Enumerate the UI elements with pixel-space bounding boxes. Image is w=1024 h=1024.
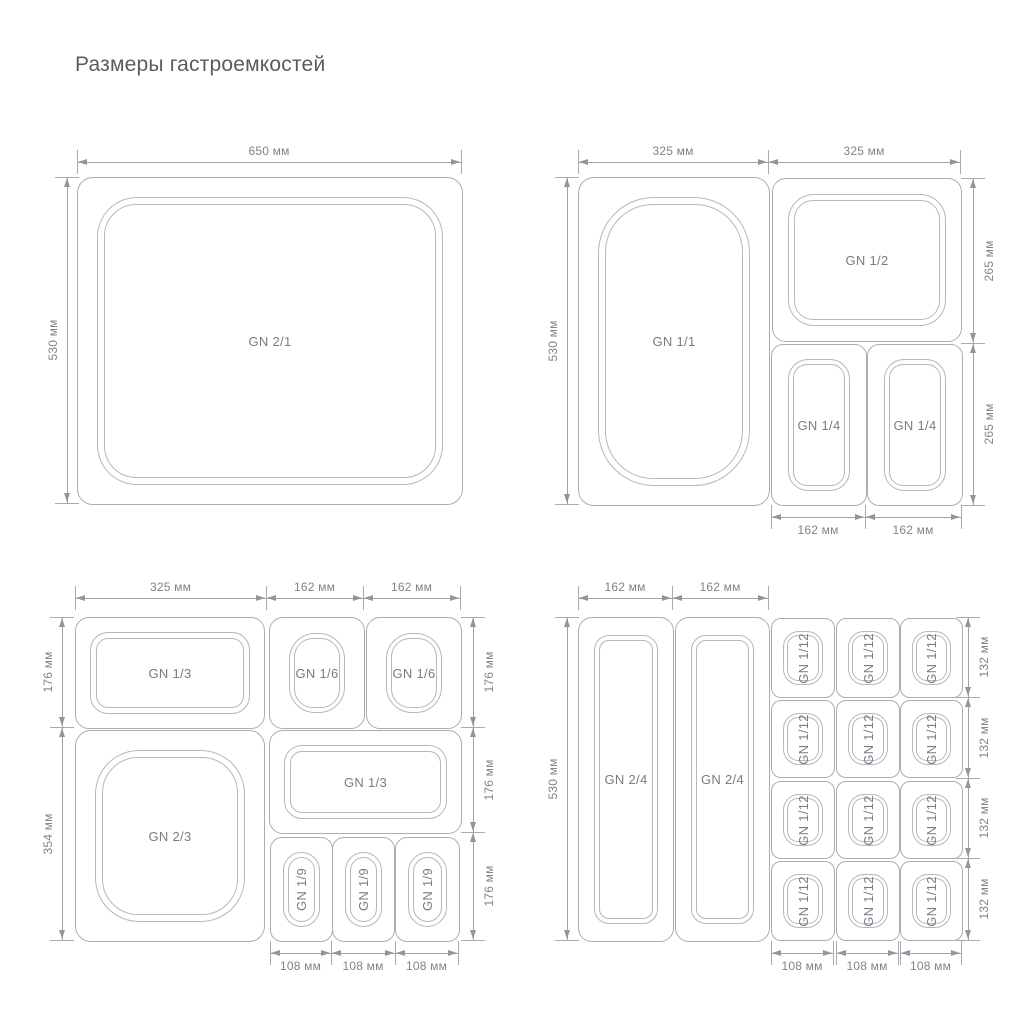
dim-label: 108 мм	[846, 959, 887, 973]
dim-label: 132 мм	[977, 717, 991, 758]
container-rim-outer	[594, 635, 658, 924]
container-label: GN 1/6	[393, 666, 436, 681]
dim-line	[62, 727, 63, 940]
container-gn-1-12: GN 1/12	[771, 618, 835, 698]
dim-extension-tick	[266, 586, 267, 610]
dim-extension-tick	[961, 941, 962, 965]
container-label: GN 1/12	[795, 795, 810, 846]
container-label: GN 2/4	[605, 772, 648, 787]
container-label-wrap: GN 1/6	[270, 618, 364, 728]
container-label-wrap: GN 1/12	[901, 782, 962, 858]
dim-extension-tick	[836, 941, 837, 965]
container-gn-1-6: GN 1/6	[366, 617, 462, 729]
dim-line	[270, 953, 331, 954]
container-rim-outer	[345, 852, 382, 927]
container-rim-inner	[104, 204, 436, 478]
dim-arrow-down	[564, 494, 570, 503]
container-label: GN 1/12	[795, 633, 810, 684]
dim-extension-tick	[266, 586, 267, 610]
container-gn-1-12: GN 1/12	[771, 781, 835, 859]
container-rim-outer	[783, 631, 823, 685]
dim-arrow-up	[470, 833, 476, 842]
container-rim-inner	[916, 878, 947, 924]
dim-line	[968, 858, 969, 940]
dim-label: 176 мм	[482, 865, 496, 906]
container-label-wrap: GN 2/4	[579, 618, 673, 941]
container-label: GN 1/12	[924, 633, 939, 684]
dim-extension-tick	[768, 150, 769, 174]
dim-extension-tick	[768, 586, 769, 610]
container-gn-1-3: GN 1/3	[269, 730, 462, 834]
container-label: GN 1/12	[795, 714, 810, 765]
dim-extension-tick	[461, 940, 485, 941]
dim-arrow-up	[59, 618, 65, 627]
dim-extension-tick	[77, 150, 78, 174]
container-rim-outer	[884, 359, 946, 491]
container-label-wrap: GN 1/2	[773, 179, 961, 341]
container-label-wrap: GN 1/12	[837, 862, 899, 940]
container-label-wrap: GN 1/3	[76, 618, 264, 728]
dim-arrow-up	[965, 698, 971, 707]
dim-line	[968, 778, 969, 858]
dim-extension-tick	[865, 505, 866, 529]
container-rim-outer	[691, 635, 754, 924]
dim-extension-tick	[961, 178, 985, 179]
dim-extension-tick	[461, 727, 485, 728]
dim-label: 265 мм	[982, 403, 996, 444]
dim-extension-tick	[50, 727, 74, 728]
dim-line	[363, 598, 460, 599]
dim-arrow-up	[970, 179, 976, 188]
dim-extension-tick	[55, 503, 79, 504]
container-label-wrap: GN 1/9	[271, 838, 332, 941]
dim-extension-tick	[956, 697, 980, 698]
dim-arrow-up	[965, 618, 971, 627]
dim-label: 530 мм	[46, 319, 60, 360]
dim-extension-tick	[363, 586, 364, 610]
dim-arrow-right	[855, 514, 864, 520]
container-gn-2-4: GN 2/4	[578, 617, 674, 942]
container-gn-1-3: GN 1/3	[75, 617, 265, 729]
dim-arrow-right	[450, 595, 459, 601]
container-rim-inner	[852, 717, 884, 761]
dim-arrow-down	[470, 717, 476, 726]
dim-extension-tick	[956, 697, 980, 698]
container-rim-inner	[787, 635, 819, 681]
container-gn-1-12: GN 1/12	[836, 861, 900, 941]
container-gn-1-4: GN 1/4	[867, 344, 963, 506]
container-rim-inner	[96, 638, 244, 708]
dim-arrow-left	[579, 595, 588, 601]
dim-arrow-right	[758, 595, 767, 601]
container-label-wrap: GN 1/12	[901, 701, 962, 777]
container-rim-inner	[916, 635, 947, 681]
dim-arrow-down	[965, 768, 971, 777]
dim-arrow-right	[385, 950, 394, 956]
dim-extension-tick	[555, 940, 579, 941]
dim-extension-tick	[55, 177, 79, 178]
dim-extension-tick	[960, 150, 961, 174]
dim-line	[266, 598, 363, 599]
dim-line	[473, 727, 474, 832]
container-label: GN 1/12	[924, 714, 939, 765]
container-label-wrap: GN 1/4	[772, 345, 866, 505]
dim-arrow-right	[951, 514, 960, 520]
container-label: GN 1/12	[924, 876, 939, 927]
container-rim-outer	[284, 745, 447, 819]
dim-line	[578, 162, 768, 163]
container-rim-inner	[889, 364, 941, 486]
dim-extension-tick	[331, 941, 332, 965]
dim-label: 108 мм	[342, 959, 383, 973]
container-label: GN 1/9	[420, 868, 435, 911]
dim-arrow-left	[78, 159, 87, 165]
dim-arrow-up	[564, 618, 570, 627]
dim-arrow-up	[64, 178, 70, 187]
dim-label: 162 мм	[604, 580, 645, 594]
dim-extension-tick	[461, 727, 485, 728]
container-label-wrap: GN 2/4	[676, 618, 769, 941]
dim-extension-tick	[578, 586, 579, 610]
dim-arrow-up	[59, 728, 65, 737]
dim-label: 325 мм	[652, 144, 693, 158]
dim-extension-tick	[458, 941, 459, 965]
dim-label: 530 мм	[546, 758, 560, 799]
dim-label: 108 мм	[910, 959, 951, 973]
dim-line	[768, 162, 960, 163]
dim-arrow-right	[256, 595, 265, 601]
dim-extension-tick	[363, 586, 364, 610]
dim-extension-tick	[956, 617, 980, 618]
container-label: GN 2/3	[149, 829, 192, 844]
container-label-wrap: GN 1/6	[367, 618, 461, 728]
container-gn-1-12: GN 1/12	[900, 618, 963, 698]
container-gn-1-12: GN 1/12	[900, 700, 963, 778]
container-label-wrap: GN 1/9	[333, 838, 394, 941]
dim-label: 108 мм	[406, 959, 447, 973]
container-label: GN 1/12	[860, 795, 875, 846]
dim-label: 325 мм	[150, 580, 191, 594]
dim-arrow-down	[965, 687, 971, 696]
dim-label: 132 мм	[977, 636, 991, 677]
container-rim-inner	[852, 798, 884, 842]
dim-arrow-up	[470, 618, 476, 627]
container-label: GN 1/1	[653, 334, 696, 349]
container-rim-inner	[916, 798, 947, 842]
container-label-wrap: GN 1/12	[772, 701, 834, 777]
dim-extension-tick	[270, 941, 271, 965]
diagram-canvas: Размеры гастроемкостей GN 2/1650 мм530 м…	[0, 0, 1024, 1024]
container-label: GN 1/12	[860, 876, 875, 927]
dim-line	[75, 598, 266, 599]
container-gn-1-12: GN 1/12	[836, 700, 900, 778]
container-gn-2-1: GN 2/1	[77, 177, 463, 505]
dim-extension-tick	[331, 941, 332, 965]
dim-label: 162 мм	[892, 523, 933, 537]
panel-gn-2-1: GN 2/1650 мм530 мм	[0, 0, 1024, 1024]
container-rim-inner	[599, 640, 653, 919]
dim-line	[771, 517, 865, 518]
container-rim-outer	[408, 852, 447, 927]
dim-arrow-left	[901, 950, 910, 956]
container-gn-1-12: GN 1/12	[900, 861, 963, 941]
dim-extension-tick	[75, 586, 76, 610]
dim-extension-tick	[771, 505, 772, 529]
container-rim-inner	[794, 200, 940, 320]
dim-arrow-left	[332, 950, 341, 956]
dim-extension-tick	[768, 150, 769, 174]
dim-arrow-left	[866, 514, 875, 520]
dim-line	[865, 517, 961, 518]
container-rim-inner	[413, 857, 442, 922]
dim-arrow-right	[888, 950, 897, 956]
container-rim-outer	[788, 359, 850, 491]
dim-arrow-left	[772, 950, 781, 956]
container-rim-outer	[848, 631, 888, 685]
dim-arrow-left	[579, 159, 588, 165]
dim-extension-tick	[961, 343, 985, 344]
dim-label: 530 мм	[546, 320, 560, 361]
dim-arrow-left	[271, 950, 280, 956]
container-rim-inner	[696, 640, 749, 919]
dim-line	[473, 832, 474, 940]
container-rim-outer	[90, 632, 250, 714]
dim-arrow-up	[965, 859, 971, 868]
dim-arrow-left	[769, 159, 778, 165]
container-label-wrap: GN 1/12	[837, 701, 899, 777]
container-label: GN 1/4	[798, 418, 841, 433]
container-label: GN 1/12	[860, 714, 875, 765]
container-rim-outer	[386, 633, 442, 713]
dim-extension-tick	[50, 940, 74, 941]
dim-line	[67, 177, 68, 503]
container-rim-outer	[97, 197, 443, 485]
dim-label: 265 мм	[982, 240, 996, 281]
container-gn-1-4: GN 1/4	[771, 344, 867, 506]
container-label: GN 1/9	[356, 868, 371, 911]
dim-extension-tick	[956, 858, 980, 859]
dim-label: 650 мм	[248, 144, 289, 158]
dim-extension-tick	[50, 727, 74, 728]
container-label: GN 1/2	[846, 253, 889, 268]
dim-extension-tick	[672, 586, 673, 610]
panel-gn-1-3-group: GN 1/3GN 1/6GN 1/6GN 2/3GN 1/3GN 1/9GN 1…	[0, 0, 1024, 1024]
dim-label: 162 мм	[294, 580, 335, 594]
dim-arrow-right	[950, 159, 959, 165]
dim-extension-tick	[555, 617, 579, 618]
dim-arrow-left	[364, 595, 373, 601]
dim-line	[473, 617, 474, 727]
dim-label: 354 мм	[41, 813, 55, 854]
container-rim-outer	[848, 713, 888, 765]
dim-arrow-left	[76, 595, 85, 601]
dim-extension-tick	[961, 505, 985, 506]
container-rim-inner	[294, 638, 340, 708]
dim-extension-tick	[956, 940, 980, 941]
dim-label: 162 мм	[797, 523, 838, 537]
dim-arrow-right	[662, 595, 671, 601]
dim-arrow-up	[564, 178, 570, 187]
dim-label: 162 мм	[699, 580, 740, 594]
dim-arrow-right	[451, 159, 460, 165]
container-rim-outer	[598, 197, 750, 486]
container-rim-outer	[783, 713, 823, 765]
dim-label: 132 мм	[977, 878, 991, 919]
dim-extension-tick	[395, 941, 396, 965]
dim-line	[836, 953, 898, 954]
container-rim-inner	[916, 717, 947, 761]
container-gn-1-9: GN 1/9	[332, 837, 395, 942]
container-label-wrap: GN 2/3	[76, 731, 264, 941]
dim-extension-tick	[956, 778, 980, 779]
container-label-wrap: GN 1/12	[837, 619, 899, 697]
container-rim-inner	[787, 878, 819, 924]
dim-line	[968, 697, 969, 778]
dim-label: 325 мм	[843, 144, 884, 158]
dim-label: 176 мм	[482, 759, 496, 800]
dim-arrow-down	[470, 822, 476, 831]
container-rim-inner	[787, 717, 819, 761]
container-gn-1-2: GN 1/2	[772, 178, 962, 342]
dim-arrow-left	[396, 950, 405, 956]
dim-arrow-right	[448, 950, 457, 956]
dim-line	[567, 177, 568, 504]
container-gn-1-12: GN 1/12	[836, 618, 900, 698]
dim-extension-tick	[771, 941, 772, 965]
container-gn-1-9: GN 1/9	[270, 837, 333, 942]
container-label-wrap: GN 1/3	[270, 731, 461, 833]
container-label-wrap: GN 1/1	[579, 178, 769, 505]
dim-extension-tick	[460, 586, 461, 610]
dim-extension-tick	[461, 150, 462, 174]
container-label-wrap: GN 1/9	[396, 838, 459, 941]
dim-line	[672, 598, 768, 599]
dim-arrow-up	[970, 344, 976, 353]
container-label: GN 1/3	[344, 775, 387, 790]
dim-line	[771, 953, 833, 954]
dim-line	[973, 178, 974, 343]
dim-extension-tick	[961, 343, 985, 344]
dim-extension-tick	[395, 941, 396, 965]
dim-arrow-left	[267, 595, 276, 601]
dim-arrow-right	[951, 950, 960, 956]
dim-extension-tick	[898, 941, 899, 965]
container-rim-outer	[912, 631, 951, 685]
container-label-wrap: GN 2/1	[78, 178, 462, 504]
dim-line	[567, 617, 568, 940]
container-gn-1-1: GN 1/1	[578, 177, 770, 506]
dim-arrow-right	[758, 159, 767, 165]
container-gn-2-3: GN 2/3	[75, 730, 265, 942]
dim-arrow-down	[564, 930, 570, 939]
dim-arrow-left	[772, 514, 781, 520]
container-rim-inner	[852, 635, 884, 681]
dim-extension-tick	[461, 832, 485, 833]
container-rim-outer	[848, 794, 888, 846]
container-rim-inner	[852, 878, 884, 924]
dim-arrow-down	[64, 493, 70, 502]
dim-arrow-down	[965, 930, 971, 939]
container-rim-outer	[912, 713, 951, 765]
dim-line	[968, 617, 969, 697]
dim-arrow-up	[470, 728, 476, 737]
dim-label: 108 мм	[280, 959, 321, 973]
container-rim-outer	[283, 852, 320, 927]
container-rim-inner	[787, 798, 819, 842]
dim-line	[62, 617, 63, 727]
dim-extension-tick	[956, 778, 980, 779]
container-label-wrap: GN 1/12	[772, 619, 834, 697]
container-label-wrap: GN 1/4	[868, 345, 962, 505]
container-label: GN 1/12	[795, 876, 810, 927]
container-rim-inner	[102, 757, 238, 915]
container-label: GN 2/1	[249, 334, 292, 349]
container-label: GN 1/6	[296, 666, 339, 681]
container-label: GN 1/12	[924, 795, 939, 846]
dim-extension-tick	[865, 505, 866, 529]
container-rim-outer	[783, 794, 823, 846]
container-rim-inner	[290, 751, 441, 813]
container-label: GN 2/4	[701, 772, 744, 787]
dim-label: 108 мм	[781, 959, 822, 973]
dim-extension-tick	[555, 177, 579, 178]
container-rim-outer	[912, 794, 951, 846]
dim-arrow-right	[321, 950, 330, 956]
container-gn-1-12: GN 1/12	[900, 781, 963, 859]
container-label-wrap: GN 1/12	[772, 782, 834, 858]
container-label-wrap: GN 1/12	[901, 619, 962, 697]
container-gn-1-9: GN 1/9	[395, 837, 460, 942]
container-gn-2-4: GN 2/4	[675, 617, 770, 942]
dim-extension-tick	[672, 586, 673, 610]
container-rim-inner	[793, 364, 845, 486]
dim-line	[578, 598, 672, 599]
dim-label: 176 мм	[482, 651, 496, 692]
container-label: GN 1/3	[149, 666, 192, 681]
dim-label: 176 мм	[41, 651, 55, 692]
dim-arrow-down	[59, 930, 65, 939]
container-label: GN 1/4	[894, 418, 937, 433]
dim-extension-tick	[956, 858, 980, 859]
dim-extension-tick	[555, 504, 579, 505]
container-rim-outer	[289, 633, 345, 713]
dim-arrow-down	[970, 495, 976, 504]
dim-extension-tick	[461, 617, 485, 618]
dim-arrow-right	[353, 595, 362, 601]
dim-arrow-down	[470, 930, 476, 939]
dim-arrow-down	[59, 717, 65, 726]
container-label-wrap: GN 1/12	[901, 862, 962, 940]
dim-line	[900, 953, 961, 954]
dim-arrow-right	[823, 950, 832, 956]
container-rim-outer	[783, 874, 823, 928]
dim-line	[973, 343, 974, 505]
dim-arrow-left	[673, 595, 682, 601]
dim-arrow-up	[965, 779, 971, 788]
dim-extension-tick	[833, 941, 834, 965]
container-rim-outer	[95, 750, 245, 922]
container-label: GN 1/12	[860, 633, 875, 684]
panel-gn-2-4-group: GN 2/4GN 2/4GN 1/12GN 1/12GN 1/12GN 1/12…	[0, 0, 1024, 1024]
dim-extension-tick	[900, 941, 901, 965]
panel-gn-1-1-group: GN 1/1GN 1/2GN 1/4GN 1/4325 мм325 мм162 …	[0, 0, 1024, 1024]
dim-extension-tick	[961, 505, 962, 529]
container-rim-outer	[912, 874, 951, 928]
dim-arrow-down	[965, 848, 971, 857]
container-label-wrap: GN 1/12	[837, 782, 899, 858]
dim-line	[331, 953, 395, 954]
dim-line	[395, 953, 458, 954]
